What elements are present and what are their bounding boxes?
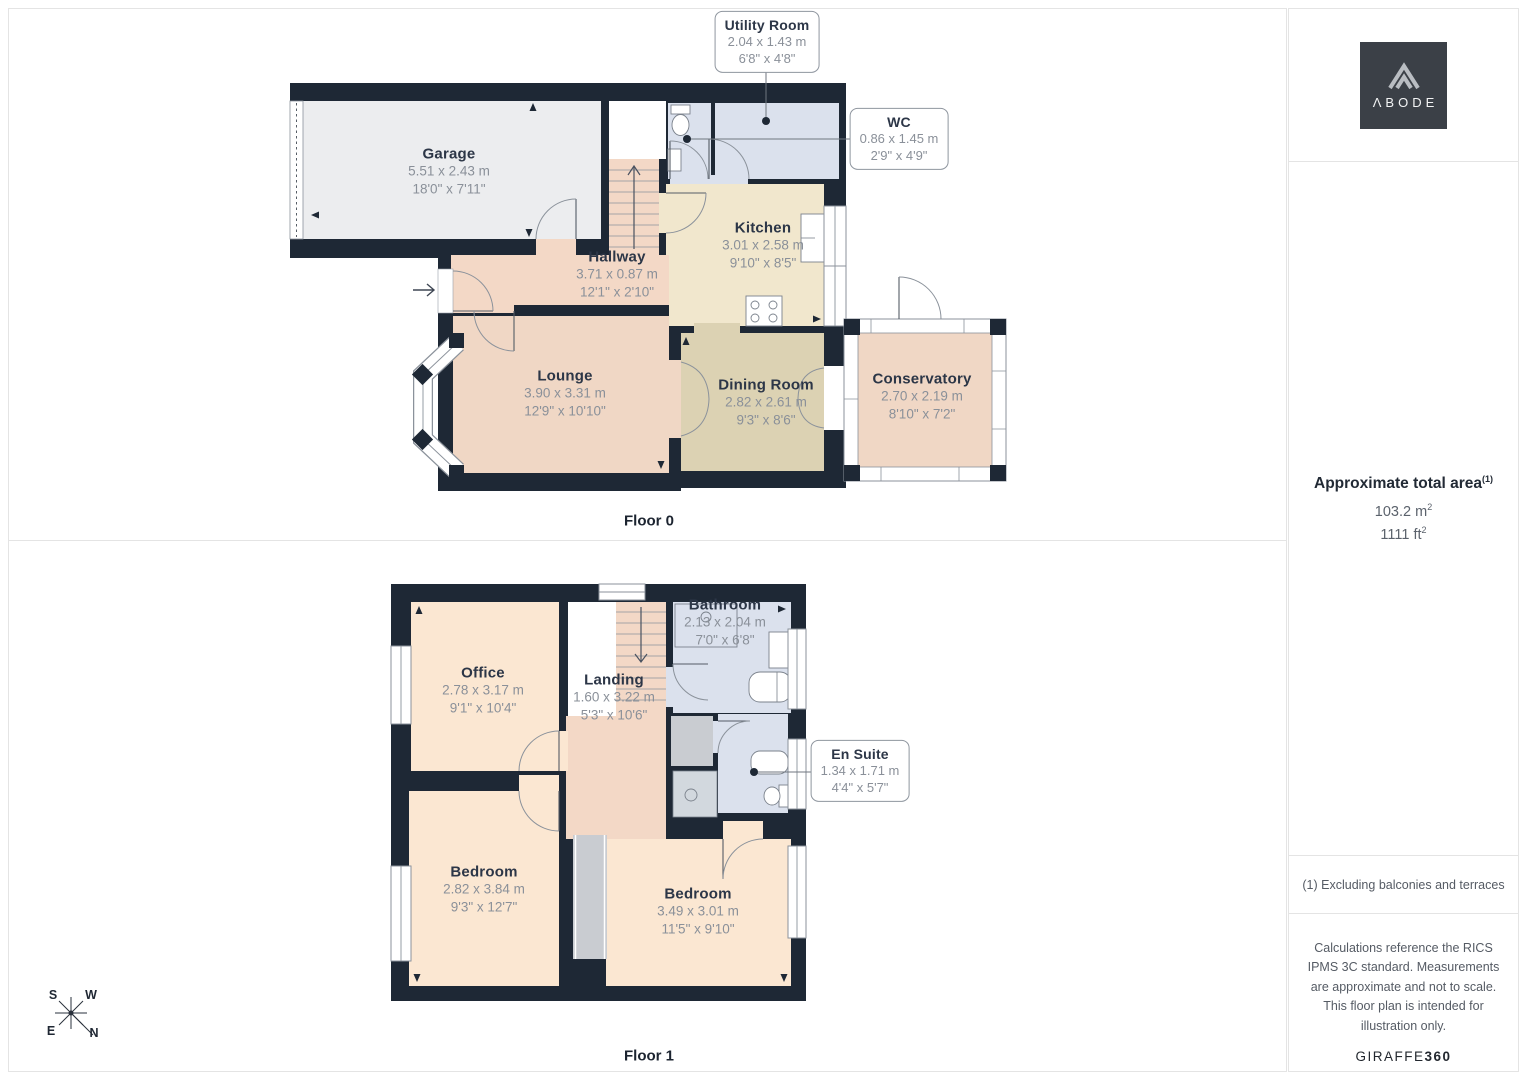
total-area-section: Approximate total area(1) 103.2 m2 1111 … <box>1289 162 1518 856</box>
disclaimer-section: Calculations reference the RICS IPMS 3C … <box>1289 914 1518 1071</box>
callout-wc: WC 0.86 x 1.45 m 2'9" x 4'9" <box>850 108 949 170</box>
area-footnote: (1) Excluding balconies and terraces <box>1289 856 1518 914</box>
abode-logo: ΛBODE <box>1360 42 1447 129</box>
total-area-imperial: 1111 ft2 <box>1380 525 1426 543</box>
abode-mountain-icon <box>1382 60 1426 90</box>
floor0-label: Floor 0 <box>624 513 674 530</box>
giraffe360-logo: GIRAFFE360 <box>1302 1047 1505 1068</box>
floorplan-panel: Garage 5.51 x 2.43 m 18'0" x 7'11" Hallw… <box>8 8 1287 1072</box>
total-area-title: Approximate total area(1) <box>1314 474 1493 493</box>
disclaimer-text: Calculations reference the RICS IPMS 3C … <box>1308 941 1500 1033</box>
callout-utility-room: Utility Room 2.04 x 1.43 m 6'8" x 4'8" <box>715 11 820 73</box>
footnote-marker: (1) <box>1482 474 1493 484</box>
callout-en-suite: En Suite 1.34 x 1.71 m 4'4" x 5'7" <box>811 740 910 802</box>
compass-icon <box>55 997 93 1035</box>
agency-logo-section: ΛBODE <box>1289 9 1518 162</box>
compass-west-label: W <box>85 988 97 1002</box>
compass-east-label: E <box>47 1024 55 1038</box>
abode-wordmark: ΛBODE <box>1369 95 1439 110</box>
floor1-label: Floor 1 <box>624 1048 674 1065</box>
info-sidebar: ΛBODE Approximate total area(1) 103.2 m2… <box>1288 8 1519 1072</box>
floor-panel-divider <box>9 540 1286 541</box>
floor1-plan-graphic <box>391 584 814 1001</box>
compass-south-label: S <box>49 988 57 1002</box>
compass-north-label: N <box>89 1026 98 1040</box>
total-area-metric: 103.2 m2 <box>1375 502 1432 520</box>
